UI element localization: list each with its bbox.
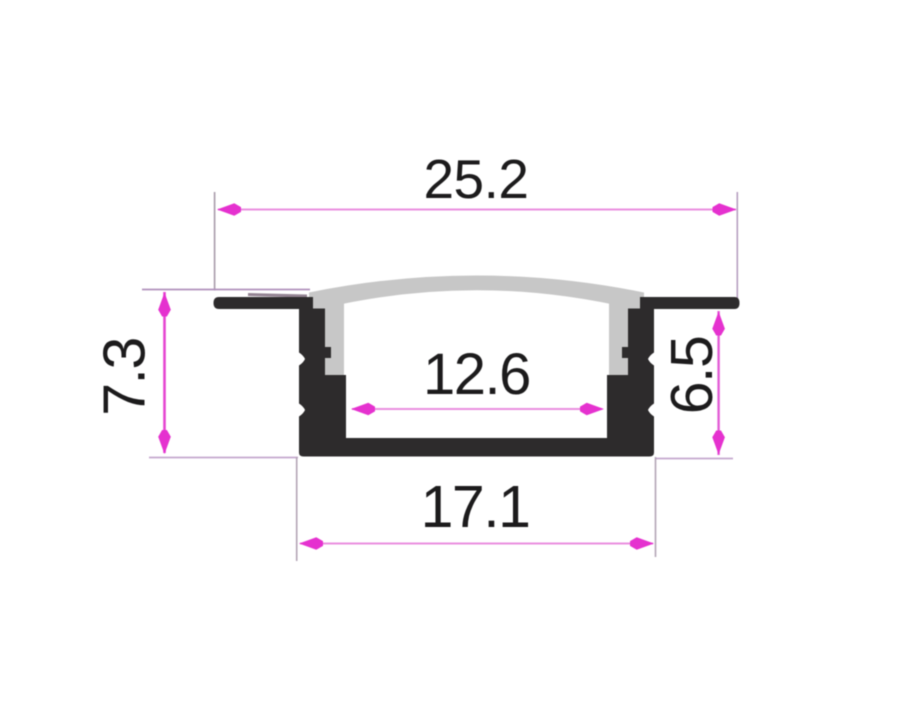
svg-text:17.1: 17.1: [421, 474, 530, 540]
svg-text:25.2: 25.2: [423, 148, 528, 210]
svg-text:6.5: 6.5: [659, 337, 725, 415]
svg-text:7.3: 7.3: [92, 338, 158, 416]
svg-text:12.6: 12.6: [423, 342, 530, 407]
